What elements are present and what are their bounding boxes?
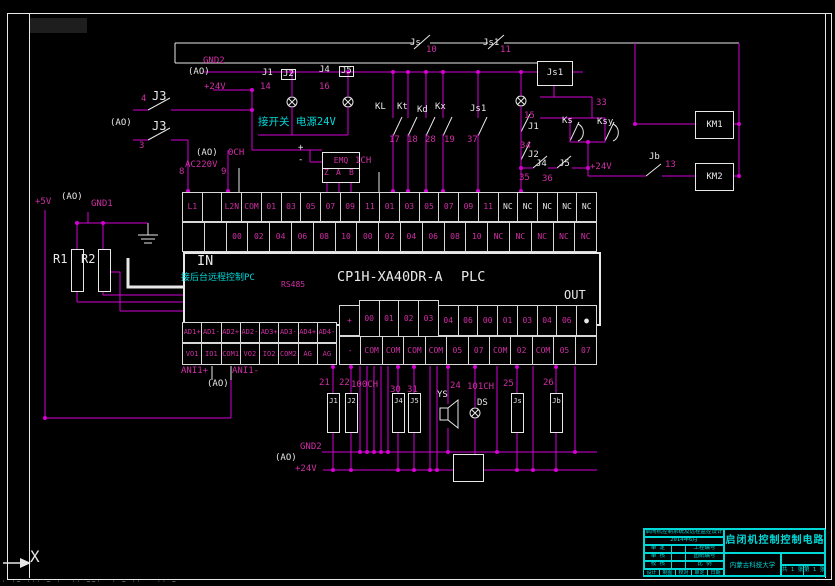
100ch-label: 100CH [351, 381, 378, 390]
sheet-number: 第 1 张 [803, 565, 826, 577]
terminal-cell: 04 [269, 222, 292, 252]
switch-power-note: 接开关 电源24V [258, 117, 336, 128]
wire-num-16: 16 [319, 83, 330, 92]
p24v-mid-label: +24V [590, 163, 612, 172]
terminal-cell: AG [317, 343, 337, 365]
terminal-cell: 07 [320, 192, 341, 222]
wire-num-18: 18 [407, 136, 418, 145]
terminal-cell: 01 [261, 192, 282, 222]
ao-label-1: (AO) [188, 68, 210, 77]
title-block: 启闭机控制系统及远程监控设计 2014年6月 审 定 工程编号 审 核 图纸编号… [643, 528, 825, 576]
wire-num-13: 13 [665, 161, 676, 170]
terminal-cell: + [339, 305, 360, 336]
titleblock-cell: 设计 [643, 569, 660, 577]
terminal-cell: 01 [379, 300, 400, 338]
titleblock-date-line: 2014年6月 [644, 537, 724, 545]
terminal-cell: AD3+ [259, 322, 279, 343]
terminal-cell: 04 [537, 305, 558, 336]
terminal-cell: NC [574, 222, 597, 252]
relay-coil-j5: J5 [408, 393, 421, 433]
input-terminal-row-bottom: 000204060810000204060810NCNCNCNCNC [183, 222, 597, 252]
p24v-bottom-label: +24V [295, 465, 317, 474]
contactor-km2-box: KM2 [695, 163, 734, 191]
wire-num-19: 19 [444, 136, 455, 145]
terminal-cell: NC [553, 222, 576, 252]
terminal-cell: 04 [400, 222, 423, 252]
wire-num-17: 17 [389, 136, 400, 145]
ao-label-4: (AO) [61, 193, 83, 202]
kl-label: KL [375, 103, 386, 112]
plc-in-label: IN [197, 255, 213, 269]
wire-num-22: 22 [339, 379, 350, 388]
remote-pc-note: 接后台远程控制PC [181, 274, 255, 283]
terminal-cell: 03 [281, 192, 302, 222]
ds-label: DS [477, 399, 488, 408]
101ch-label: 101CH [467, 383, 494, 392]
terminal-cell: AG [298, 343, 318, 365]
terminal-cell: 06 [556, 305, 577, 336]
terminal-cell: 03 [399, 192, 420, 222]
terminal-cell: 10 [335, 222, 358, 252]
ds-junction-box [453, 454, 484, 482]
p24v-top-label: +24V [204, 83, 226, 92]
titleblock-blank-cell [781, 553, 826, 565]
ao-label-2: (AO) [110, 119, 132, 128]
r1-label: R1 [53, 253, 67, 265]
clipped-status-text: · ·─ ··· ─ · ·· ──· · ─ ·· ·· ─ [2, 579, 177, 585]
terminal-cell: COM [425, 336, 447, 365]
titleblock-cell: 校对 [675, 569, 692, 577]
output-terminal-row-bottom: -COMCOMCOMCOM0507COM02COM0507 [340, 336, 597, 365]
input-terminal-row-top: L1L2NCOM010305070911010305070911NCNCNCNC… [183, 192, 597, 222]
wire-num-24: 24 [450, 382, 461, 391]
terminal-cell: 02 [378, 222, 401, 252]
terminal-cell: NC [531, 222, 554, 252]
terminal-cell: AD4+ [298, 322, 318, 343]
terminal-cell: COM [382, 336, 404, 365]
j2-top-label: J2 [281, 69, 296, 80]
wire-num-36: 36 [542, 175, 553, 184]
terminal-cell: COM [403, 336, 425, 365]
terminal-cell: VO2 [240, 343, 260, 365]
terminal-cell: 05 [553, 336, 575, 365]
terminal-cell [204, 222, 227, 252]
terminal-cell: COM2 [278, 343, 298, 365]
titleblock-cell: 日期 [707, 569, 724, 577]
terminal-cell: 02 [398, 300, 419, 338]
terminal-cell: AD4- [317, 322, 337, 343]
wire-num-33: 33 [596, 99, 607, 108]
ys-label: YS [437, 391, 448, 400]
wire-num-8: 8 [179, 168, 184, 177]
kt-label: Kt [397, 103, 408, 112]
terminal-cell: AD2- [240, 322, 260, 343]
organization-name: 内蒙古科技大学 [724, 553, 781, 577]
j4-chain-label: J4 [536, 160, 547, 169]
wire-num-37: 37 [467, 136, 478, 145]
drawing-title: 启闭机控制控制电路 [724, 529, 826, 553]
terminal-cell: 00 [477, 305, 498, 336]
emq-a: A [336, 169, 341, 177]
js1-mid-label: Js1 [470, 105, 486, 114]
terminal-cell: 00 [226, 222, 249, 252]
terminal-cell: 01 [379, 192, 400, 222]
terminal-cell: 01 [497, 305, 518, 336]
terminal-cell: NC [498, 192, 519, 222]
terminal-cell: 07 [575, 336, 597, 365]
j3-upper-label: J3 [152, 90, 166, 102]
terminal-cell: IO2 [259, 343, 279, 365]
ucs-icon [3, 558, 31, 568]
terminal-cell: 00 [356, 222, 379, 252]
wire-num-25: 25 [503, 380, 514, 389]
titleblock-bottom-row: 设计制图校对审定日期 [644, 569, 724, 577]
r2-label: R2 [81, 253, 95, 265]
terminal-cell: 07 [468, 336, 490, 365]
wire-num-4: 4 [141, 95, 146, 104]
analog-terminal-row-bottom: VO1IO1COM1VO2IO2COM2AGAG [183, 343, 337, 365]
analog-terminal-row-top: AD1+AD1-AD2+AD2-AD3+AD3-AD4+AD4- [183, 322, 337, 343]
ksy-label: Ksy [597, 118, 613, 127]
relay-coil-j1: J1 [327, 393, 340, 433]
ao-label-6: (AO) [275, 454, 297, 463]
terminal-cell: 11 [359, 192, 380, 222]
terminal-cell: COM [532, 336, 554, 365]
terminal-cell: 08 [444, 222, 467, 252]
output-terminal-row-top: +0001020304060001030406● [340, 305, 597, 336]
titleblock-row-blank [671, 561, 686, 569]
speaker-icon [440, 400, 458, 428]
wire-num-9: 9 [221, 168, 226, 177]
wire-num-31: 31 [407, 386, 418, 395]
emq-b: B [349, 169, 354, 177]
terminal-cell: VO1 [182, 343, 202, 365]
js1-top-label: Js1 [483, 39, 499, 48]
terminal-cell: 09 [340, 192, 361, 222]
terminal-cell: NC [509, 222, 532, 252]
wire-num-11: 11 [500, 46, 511, 55]
titleblock-row-label: 审 定 [644, 545, 672, 553]
terminal-cell: NC [537, 192, 558, 222]
terminal-cell: NC [517, 192, 538, 222]
wire-num-15: 15 [524, 112, 535, 121]
relay-coil-js: Js [511, 393, 524, 433]
ao-label-3: (AO) [196, 149, 218, 158]
1ch-label: 1CH [355, 157, 371, 166]
j4-top-label: J4 [319, 66, 330, 75]
wire-num-26: 26 [543, 379, 554, 388]
terminal-cell: ● [576, 305, 597, 336]
terminal-cell: 10 [465, 222, 488, 252]
terminal-cell: L2N [221, 192, 242, 222]
terminal-cell: COM1 [221, 343, 241, 365]
wire-num-21: 21 [319, 379, 330, 388]
titleblock-row-field: 比 例 [685, 561, 724, 569]
terminal-cell: 06 [458, 305, 479, 336]
titleblock-row-label: 校 核 [644, 561, 672, 569]
titleblock-project-line: 启闭机控制系统及远程监控设计 [644, 529, 724, 537]
ani-plus-label: ANI1+ [181, 367, 208, 376]
ucs-x-label: X [30, 549, 40, 565]
js-top-label: Js [410, 39, 421, 48]
wire-num-14: 14 [260, 83, 271, 92]
contactor-km1-box: KM1 [695, 111, 734, 139]
wire-num-10: 10 [426, 46, 437, 55]
terminal-cell: 02 [247, 222, 270, 252]
emq-minus: - [298, 156, 303, 165]
terminal-cell: AD3- [278, 322, 298, 343]
terminal-cell [202, 192, 223, 222]
plc-type-label: PLC [461, 271, 485, 285]
terminal-cell: 11 [478, 192, 499, 222]
ks-label: Ks [562, 117, 573, 126]
titleblock-row-blank [671, 545, 686, 553]
relay-coil-j4: J4 [392, 393, 405, 433]
resistor-r2-box [98, 249, 111, 292]
relay-coil-jb: Jb [550, 393, 563, 433]
terminal-cell: 02 [510, 336, 532, 365]
j1-top-label: J1 [262, 69, 273, 78]
rs485-label: RS485 [281, 281, 305, 289]
jb-label: Jb [649, 153, 660, 162]
ac220v-label: AC220V [185, 161, 218, 170]
terminal-cell: 03 [517, 305, 538, 336]
timer-relay-js1-box: Js1 [537, 61, 573, 86]
terminal-cell: AD1- [201, 322, 221, 343]
titleblock-row-field: 工程编号 [685, 545, 724, 553]
terminal-cell: L1 [182, 192, 203, 222]
gnd2-top-label: GND2 [203, 57, 225, 66]
j3-lower-label: J3 [152, 120, 166, 132]
titleblock-row-label: 审 核 [644, 553, 672, 561]
titleblock-cell: 制图 [659, 569, 676, 577]
terminal-cell: 07 [438, 192, 459, 222]
titleblock-row-blank [671, 553, 686, 561]
terminal-cell: 04 [438, 305, 459, 336]
terminal-cell [182, 222, 205, 252]
terminal-cell: 03 [418, 300, 439, 338]
plc-model-label: CP1H-XA40DR-A [337, 271, 443, 285]
och-label: 0CH [228, 149, 244, 158]
wire-num-35: 35 [519, 174, 530, 183]
sheet-total: 共 1 张 [781, 565, 804, 577]
terminal-cell: COM [241, 192, 262, 222]
terminal-cell: IO1 [201, 343, 221, 365]
kd-label: Kd [417, 106, 428, 115]
kx-label: Kx [435, 103, 446, 112]
terminal-cell: NC [557, 192, 578, 222]
terminal-cell: COM [360, 336, 382, 365]
wire-num-28: 28 [425, 136, 436, 145]
ao-label-5: (AO) [207, 380, 229, 389]
terminal-cell: AD1+ [182, 322, 202, 343]
terminal-cell: AD2+ [221, 322, 241, 343]
wire-num-3: 3 [139, 142, 144, 151]
emq-plus: + [298, 144, 303, 153]
wire-num-30: 30 [390, 386, 401, 395]
titleblock-cell: 审定 [691, 569, 708, 577]
terminal-cell: 05 [419, 192, 440, 222]
gnd1-label: GND1 [91, 200, 113, 209]
terminal-cell: 00 [359, 300, 380, 338]
j5-top-label: J5 [339, 66, 354, 77]
terminal-cell: NC [487, 222, 510, 252]
titleblock-row-field: 图纸编号 [685, 553, 724, 561]
j1-chain-label: J1 [528, 123, 539, 132]
plc-out-label: OUT [564, 289, 586, 301]
terminal-cell: 09 [458, 192, 479, 222]
gnd2-bottom-label: GND2 [300, 443, 322, 452]
terminal-cell: 05 [446, 336, 468, 365]
terminal-cell: COM [489, 336, 511, 365]
terminal-cell: 08 [313, 222, 336, 252]
relay-coil-j2: J2 [345, 393, 358, 433]
terminal-cell: 05 [300, 192, 321, 222]
p5v-label: +5V [35, 198, 51, 207]
cad-canvas[interactable]: IN CP1H-XA40DR-A PLC OUT L1L2NCOM0103050… [0, 0, 835, 586]
j5-chain-label: J5 [559, 160, 570, 169]
terminal-cell: 06 [422, 222, 445, 252]
terminal-cell: NC [576, 192, 597, 222]
ani-minus-label: ANI1- [232, 367, 259, 376]
terminal-cell: - [339, 336, 361, 365]
terminal-cell: 06 [291, 222, 314, 252]
emq-z: Z [324, 169, 329, 177]
